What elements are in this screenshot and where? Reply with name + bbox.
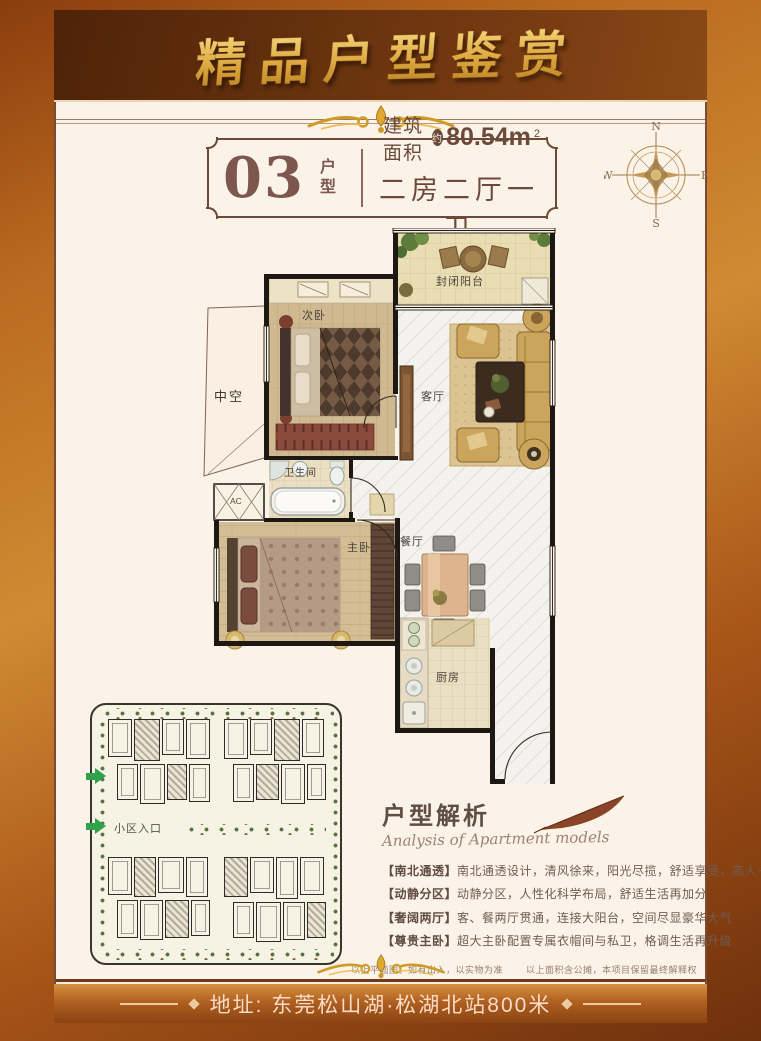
room-label-bathroom: 卫生间	[284, 464, 317, 479]
unit-number: 03	[223, 150, 305, 206]
poster-title: 精品户型鉴赏	[179, 14, 583, 97]
analysis-point: 【奢阔两厅】客、餐两厅贯通，连接大阳台，空间尽显豪华大气	[382, 907, 718, 930]
room-label-kitchen: 厨房	[436, 669, 460, 685]
poster: 精品户型鉴赏 03 户型 建筑面积	[0, 0, 761, 1041]
room-label-ac: AC	[230, 496, 242, 506]
unit-header-plaque: 03 户型 建筑面积 约 80.54m 2 二房二厅一卫	[207, 138, 557, 218]
room-label-master-bedroom: 主卧	[347, 539, 371, 555]
trees-left	[95, 719, 106, 949]
address-diamond-left-icon	[188, 998, 199, 1009]
building-block-1	[108, 719, 210, 804]
address-diamond-right-icon	[562, 998, 573, 1009]
trees-top	[100, 708, 334, 719]
area-value: 80.54m	[446, 123, 531, 152]
trees-bottom	[100, 949, 334, 960]
compass-rose-icon: N S W E	[604, 120, 708, 228]
analysis-point: 【动静分区】动静分区，人性化科学布局，舒适生活再加分	[382, 883, 718, 906]
entrance-label: 小区入口	[114, 820, 162, 836]
area-sup: 2	[534, 128, 541, 140]
compass-n: N	[651, 120, 661, 133]
siteplan: 小区入口	[90, 703, 342, 965]
trees-road	[184, 824, 326, 835]
room-label-balcony: 封闭阳台	[436, 273, 484, 289]
entrance-arrow-top-icon	[86, 768, 114, 784]
analysis-point: 【南北通透】南北通透设计，清风徐来，阳光尽揽，舒适享受，高人一等	[382, 860, 718, 883]
title-banner: 精品户型鉴赏	[54, 10, 707, 102]
area-prefix: 建筑面积	[377, 111, 429, 165]
compass-s: S	[652, 217, 660, 228]
analysis-section: 户型解析 Analysis of Apartment models 【南北通透】…	[382, 796, 718, 954]
address-ornament-left	[120, 1003, 178, 1005]
room-label-dining: 餐厅	[400, 533, 424, 549]
address-text: 地址: 东莞松山湖·松湖北站800米	[210, 989, 552, 1019]
address-ornament-right	[583, 1003, 641, 1005]
content-area: 03 户型 建筑面积 约 80.54m 2 二房二厅一卫	[54, 102, 707, 984]
compass-e: E	[701, 169, 708, 182]
plaque-divider	[361, 149, 363, 207]
area-line: 建筑面积 约 80.54m 2	[377, 111, 541, 165]
trees-right	[328, 719, 339, 949]
unit-type-label: 户型	[313, 158, 337, 198]
building-block-3	[108, 857, 210, 940]
bottom-separator	[56, 979, 705, 982]
analysis-point: 【尊贵主卧】超大主卧配置专属衣帽间与私卫，格调生活再升级	[382, 930, 718, 953]
building-block-2	[224, 719, 326, 804]
room-label-void: 中空	[214, 386, 244, 405]
compass-w: W	[604, 169, 613, 182]
entrance-arrow-icon	[86, 818, 114, 834]
room-label-second-bedroom: 次卧	[302, 307, 326, 323]
gold-flourish-bottom-icon	[301, 954, 461, 980]
disclaimer-part2: 以上面积含公摊，本项目保留最终解释权	[526, 965, 697, 975]
area-approx-badge: 约	[432, 129, 443, 146]
room-label-living: 客厅	[421, 388, 445, 404]
building-block-4	[224, 857, 326, 942]
address-bar: 地址: 东莞松山湖·松湖北站800米	[54, 984, 707, 1023]
